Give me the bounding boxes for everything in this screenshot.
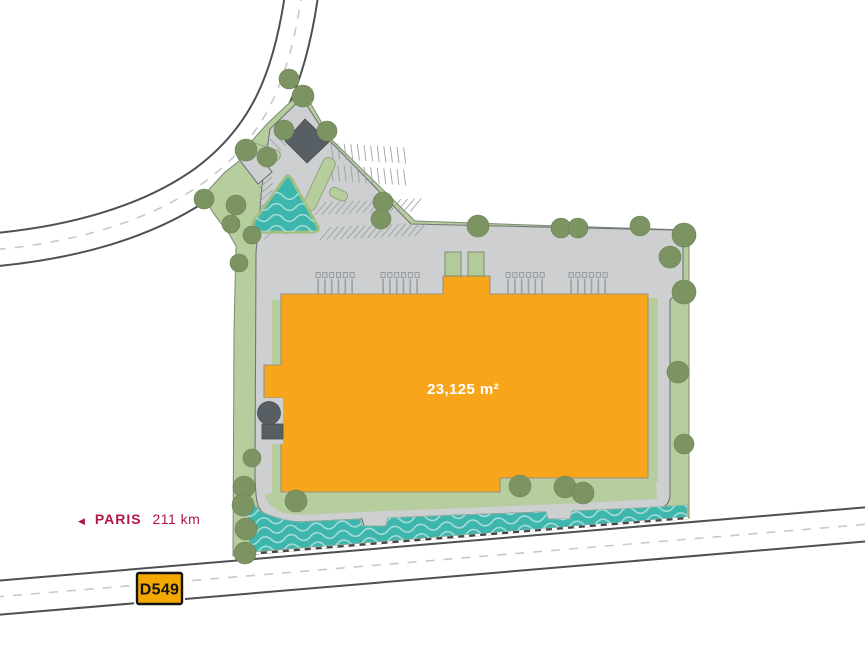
tree-icon xyxy=(317,121,337,141)
dock-icon xyxy=(576,273,580,278)
dock-icon xyxy=(540,273,544,278)
tree-icon xyxy=(235,139,257,161)
tree-icon xyxy=(371,209,391,229)
dock-icon xyxy=(408,273,412,278)
tree-icon xyxy=(667,361,689,383)
dock-icon xyxy=(316,273,320,278)
dock-icon xyxy=(533,273,537,278)
tree-icon xyxy=(509,475,531,497)
dock-icon xyxy=(596,273,600,278)
dock-icon xyxy=(583,273,587,278)
tree-icon xyxy=(672,280,696,304)
dock-icon xyxy=(323,273,327,278)
dock-icon xyxy=(603,273,607,278)
left-arrow-icon: ◀ xyxy=(78,516,86,526)
badge-label: D549 xyxy=(140,582,179,599)
tree-icon xyxy=(572,482,594,504)
tree-icon xyxy=(672,223,696,247)
dock-icon xyxy=(401,273,405,278)
dock-icon xyxy=(569,273,573,278)
paris-distance-label: 211 km xyxy=(152,511,200,527)
tree-icon xyxy=(222,215,240,233)
green-strip-right xyxy=(648,298,658,482)
paris-city-label: PARIS xyxy=(95,511,142,527)
building-area-label: 23,125 m² xyxy=(427,381,499,398)
dock-icon xyxy=(589,273,593,278)
dock-icon xyxy=(336,273,340,278)
tree-icon xyxy=(630,216,650,236)
tree-icon xyxy=(257,147,277,167)
tree-icon xyxy=(674,434,694,454)
tree-icon xyxy=(274,120,294,140)
tree-icon xyxy=(568,218,588,238)
tree-icon xyxy=(235,518,257,540)
sprinkler-tank-icon xyxy=(258,402,281,425)
tree-icon xyxy=(292,85,314,107)
dock-icon xyxy=(513,273,517,278)
dock-icon xyxy=(350,273,354,278)
tree-icon xyxy=(467,215,489,237)
dock-icon xyxy=(381,273,385,278)
tree-icon xyxy=(659,246,681,268)
dock-icon xyxy=(388,273,392,278)
dock-icon xyxy=(520,273,524,278)
tree-icon xyxy=(234,542,256,564)
dock-icon xyxy=(526,273,530,278)
dock-icon xyxy=(330,273,334,278)
tree-icon xyxy=(243,226,261,244)
tree-icon xyxy=(226,195,246,215)
tree-icon xyxy=(285,490,307,512)
dock-icon xyxy=(343,273,347,278)
site-plan-map: 23,125 m² ◀ PARIS 211 km D549 xyxy=(0,0,865,665)
pump-house xyxy=(262,424,283,439)
sprinkler-tank-area xyxy=(256,398,283,444)
tree-icon xyxy=(194,189,214,209)
d549-road-badge: D549 xyxy=(137,573,182,604)
tree-icon xyxy=(232,494,254,516)
tree-icon xyxy=(279,69,299,89)
dock-icon xyxy=(506,273,510,278)
dock-icon xyxy=(415,273,419,278)
tree-icon xyxy=(230,254,248,272)
paris-direction-label: ◀ PARIS 211 km xyxy=(78,511,200,527)
dock-icon xyxy=(395,273,399,278)
tree-icon xyxy=(243,449,261,467)
